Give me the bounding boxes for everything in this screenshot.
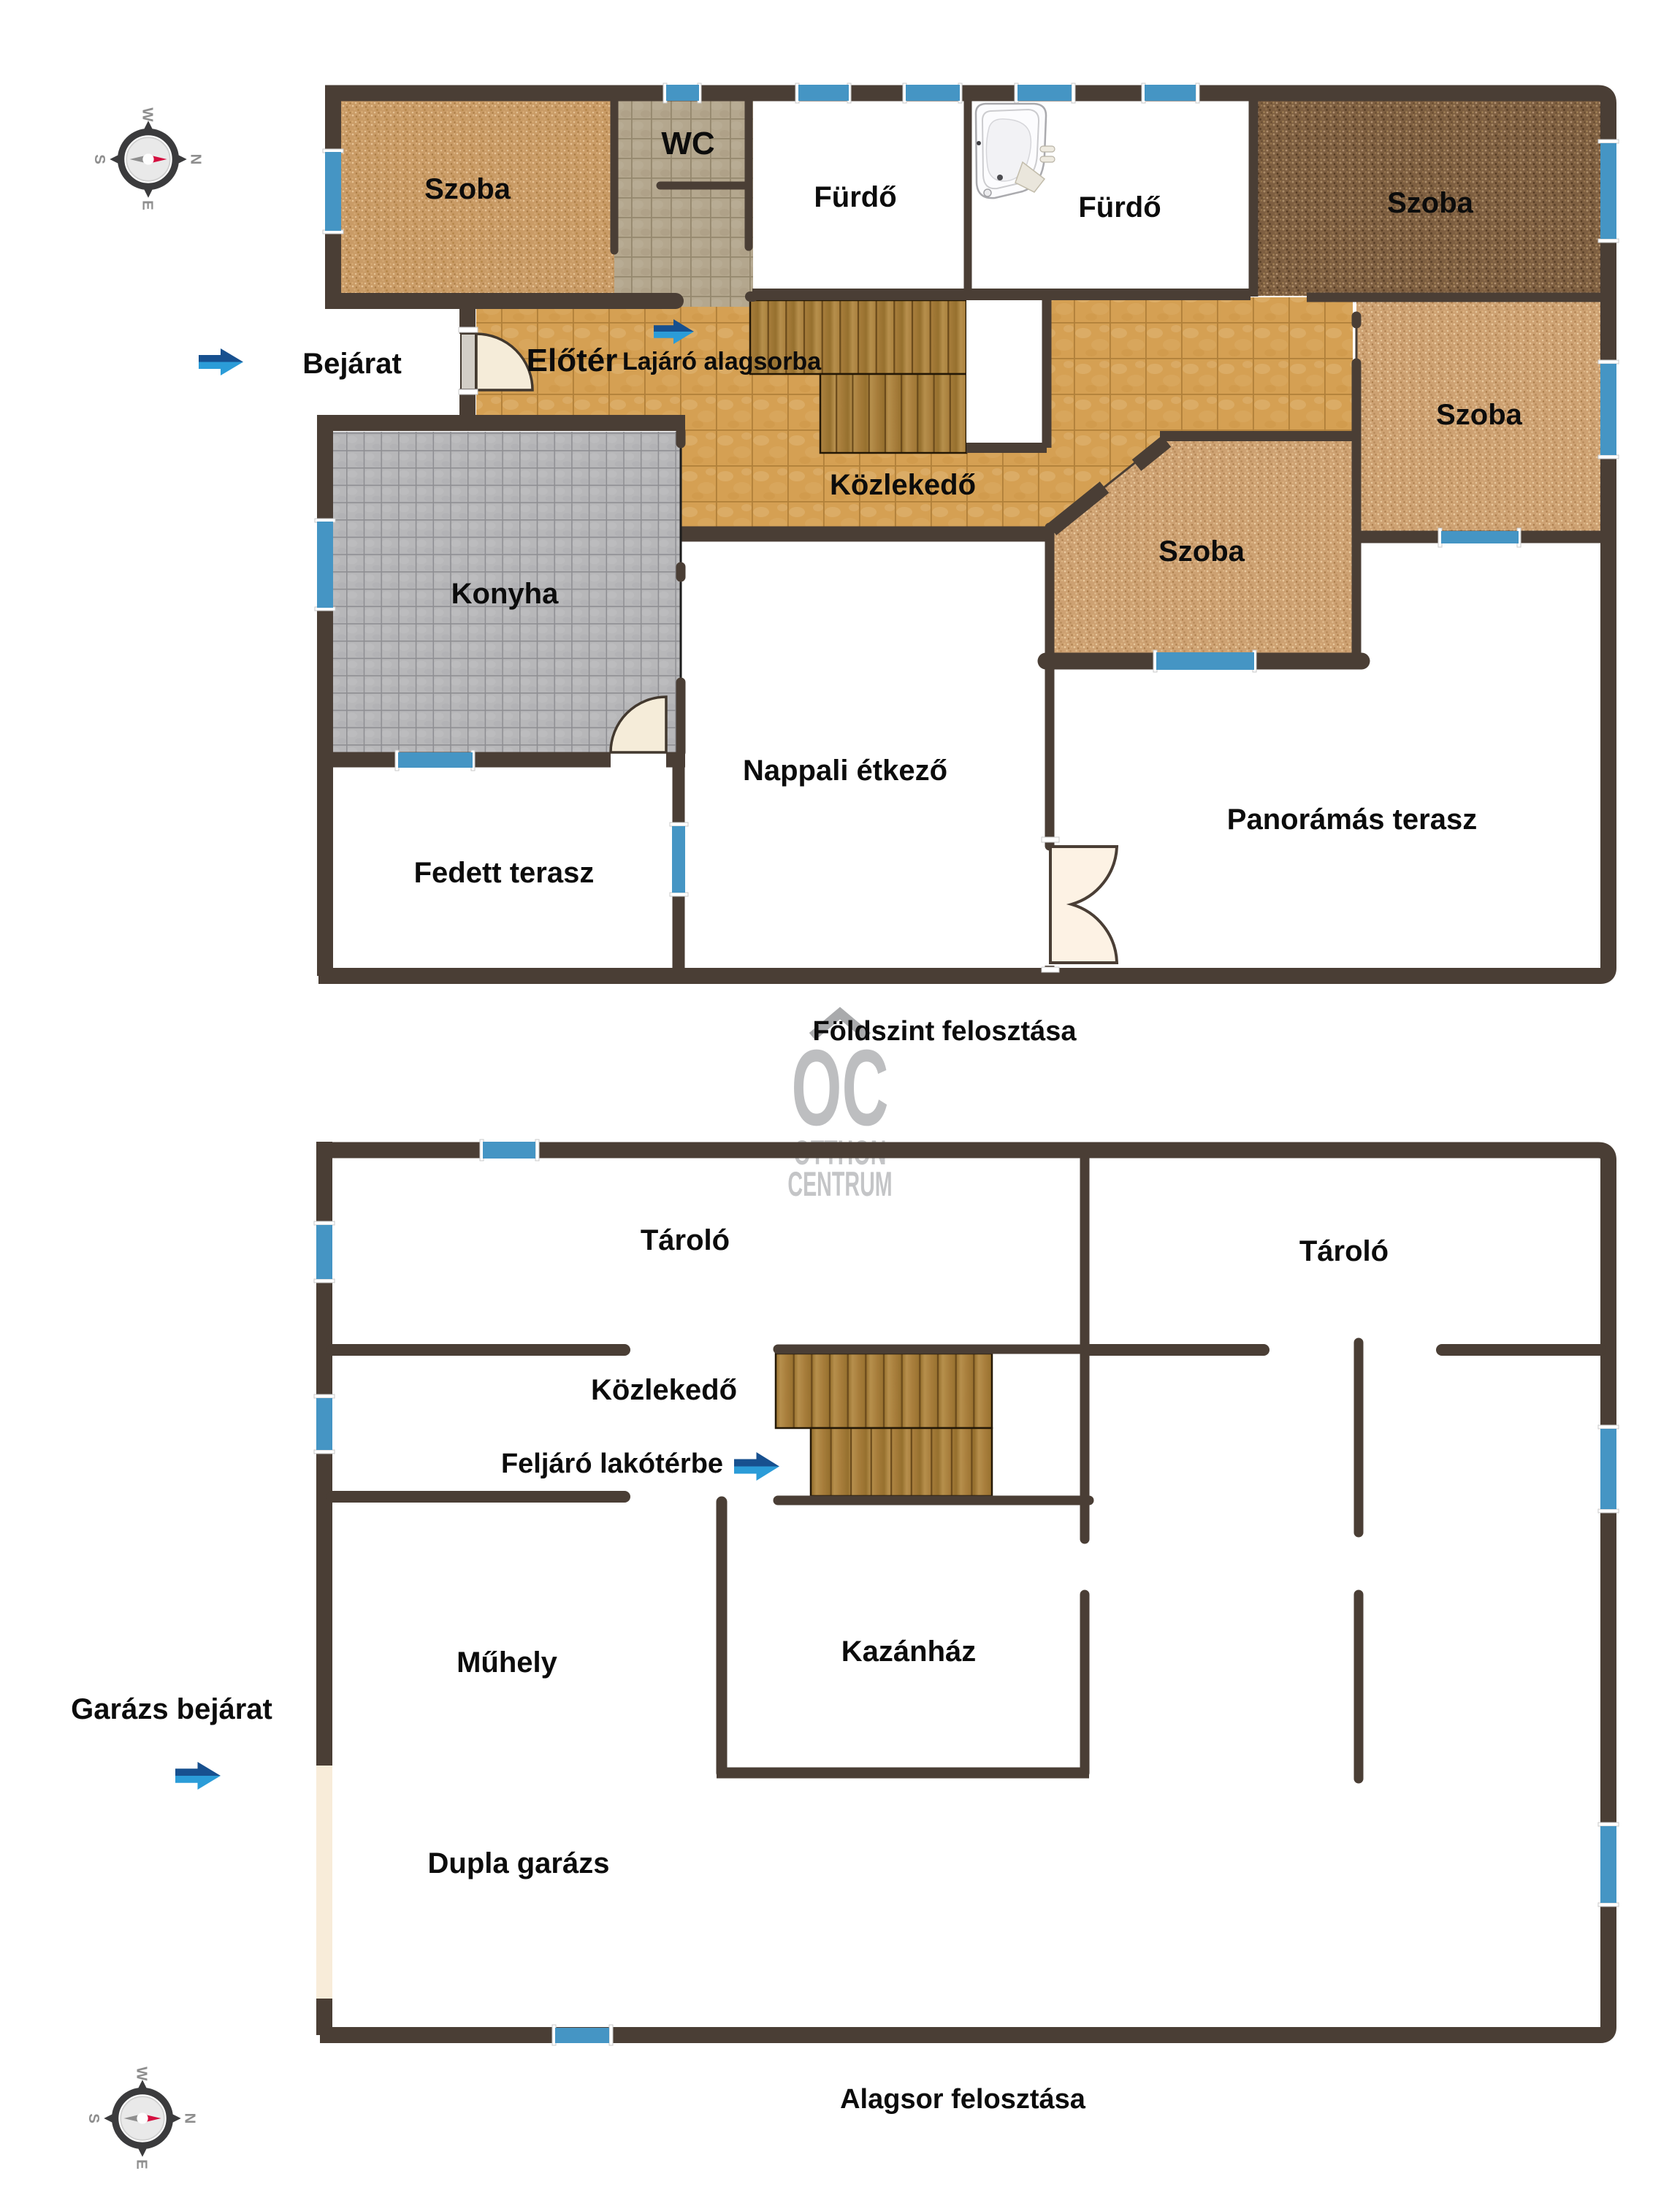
svg-text:E: E <box>139 200 155 210</box>
svg-text:Előtér: Előtér <box>527 343 618 378</box>
svg-text:CENTRUM: CENTRUM <box>787 1166 892 1204</box>
svg-text:Közlekedő: Közlekedő <box>830 469 976 501</box>
svg-text:Nappali étkező: Nappali étkező <box>743 755 947 787</box>
svg-text:Földszint felosztása: Földszint felosztása <box>812 1016 1077 1047</box>
svg-text:WC: WC <box>661 126 714 161</box>
svg-text:Alagsor felosztása: Alagsor felosztása <box>840 2084 1086 2115</box>
svg-text:Konyha: Konyha <box>451 578 559 610</box>
svg-text:Műhely: Műhely <box>457 1646 558 1679</box>
svg-text:S: S <box>91 154 107 164</box>
svg-text:Kazánház: Kazánház <box>841 1636 977 1668</box>
svg-text:Szoba: Szoba <box>1158 535 1245 568</box>
svg-text:Szoba: Szoba <box>1387 187 1474 219</box>
svg-text:Lajáró alagsorba: Lajáró alagsorba <box>622 348 822 375</box>
svg-text:Bejárat: Bejárat <box>302 348 402 380</box>
svg-text:Garázs bejárat: Garázs bejárat <box>71 1693 272 1725</box>
svg-text:Tároló: Tároló <box>641 1224 730 1256</box>
svg-text:Szoba: Szoba <box>1436 399 1523 431</box>
svg-text:Dupla garázs: Dupla garázs <box>428 1847 610 1879</box>
svg-text:Feljáró lakótérbe: Feljáró lakótérbe <box>501 1449 723 1479</box>
svg-text:Közlekedő: Közlekedő <box>591 1374 737 1406</box>
svg-text:Panorámás terasz: Panorámás terasz <box>1227 804 1477 836</box>
svg-text:Fürdő: Fürdő <box>1078 191 1161 224</box>
svg-text:N: N <box>188 154 204 165</box>
svg-text:Szoba: Szoba <box>424 173 511 205</box>
svg-text:Fürdő: Fürdő <box>814 181 896 213</box>
svg-text:Tároló: Tároló <box>1299 1235 1389 1267</box>
svg-text:Fedett terasz: Fedett terasz <box>414 857 595 889</box>
svg-text:W: W <box>139 107 155 122</box>
